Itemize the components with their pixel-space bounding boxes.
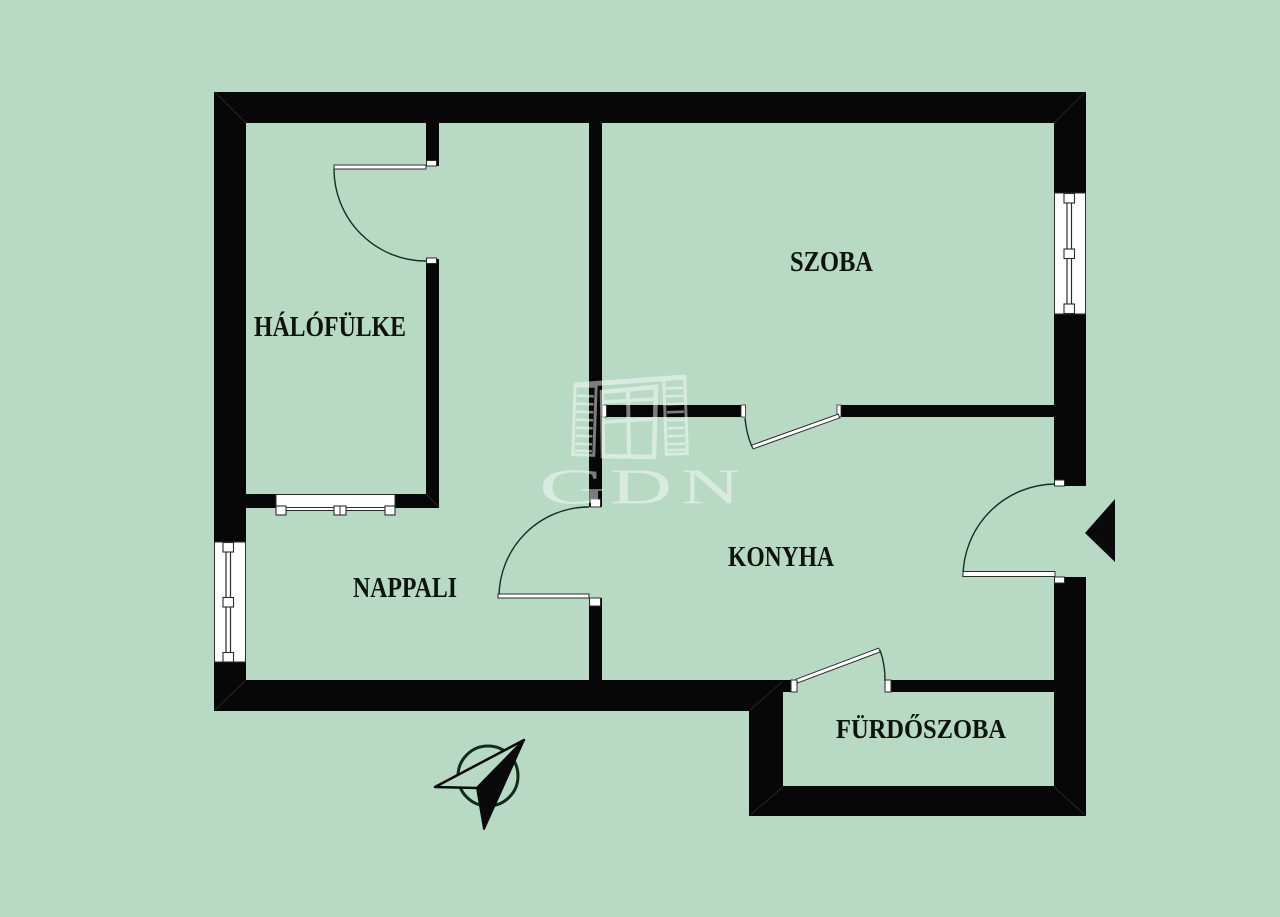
svg-text:KONYHA: KONYHA <box>728 542 834 573</box>
svg-text:N: N <box>681 458 740 514</box>
svg-text:NAPPALI: NAPPALI <box>353 572 457 604</box>
svg-text:HÁLÓFÜLKE: HÁLÓFÜLKE <box>254 310 406 343</box>
svg-text:FÜRDŐSZOBA: FÜRDŐSZOBA <box>836 713 1006 744</box>
svg-text:SZOBA: SZOBA <box>790 246 873 278</box>
svg-text:D: D <box>610 458 672 514</box>
svg-text:G: G <box>539 458 607 514</box>
